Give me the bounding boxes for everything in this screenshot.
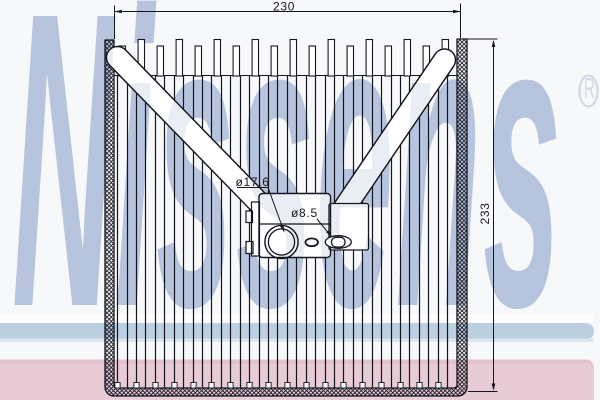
svg-text:230: 230 — [273, 0, 295, 14]
svg-text:ø17.6: ø17.6 — [236, 175, 270, 189]
svg-text:233: 233 — [478, 202, 492, 224]
svg-text:ø8.5: ø8.5 — [291, 206, 318, 220]
